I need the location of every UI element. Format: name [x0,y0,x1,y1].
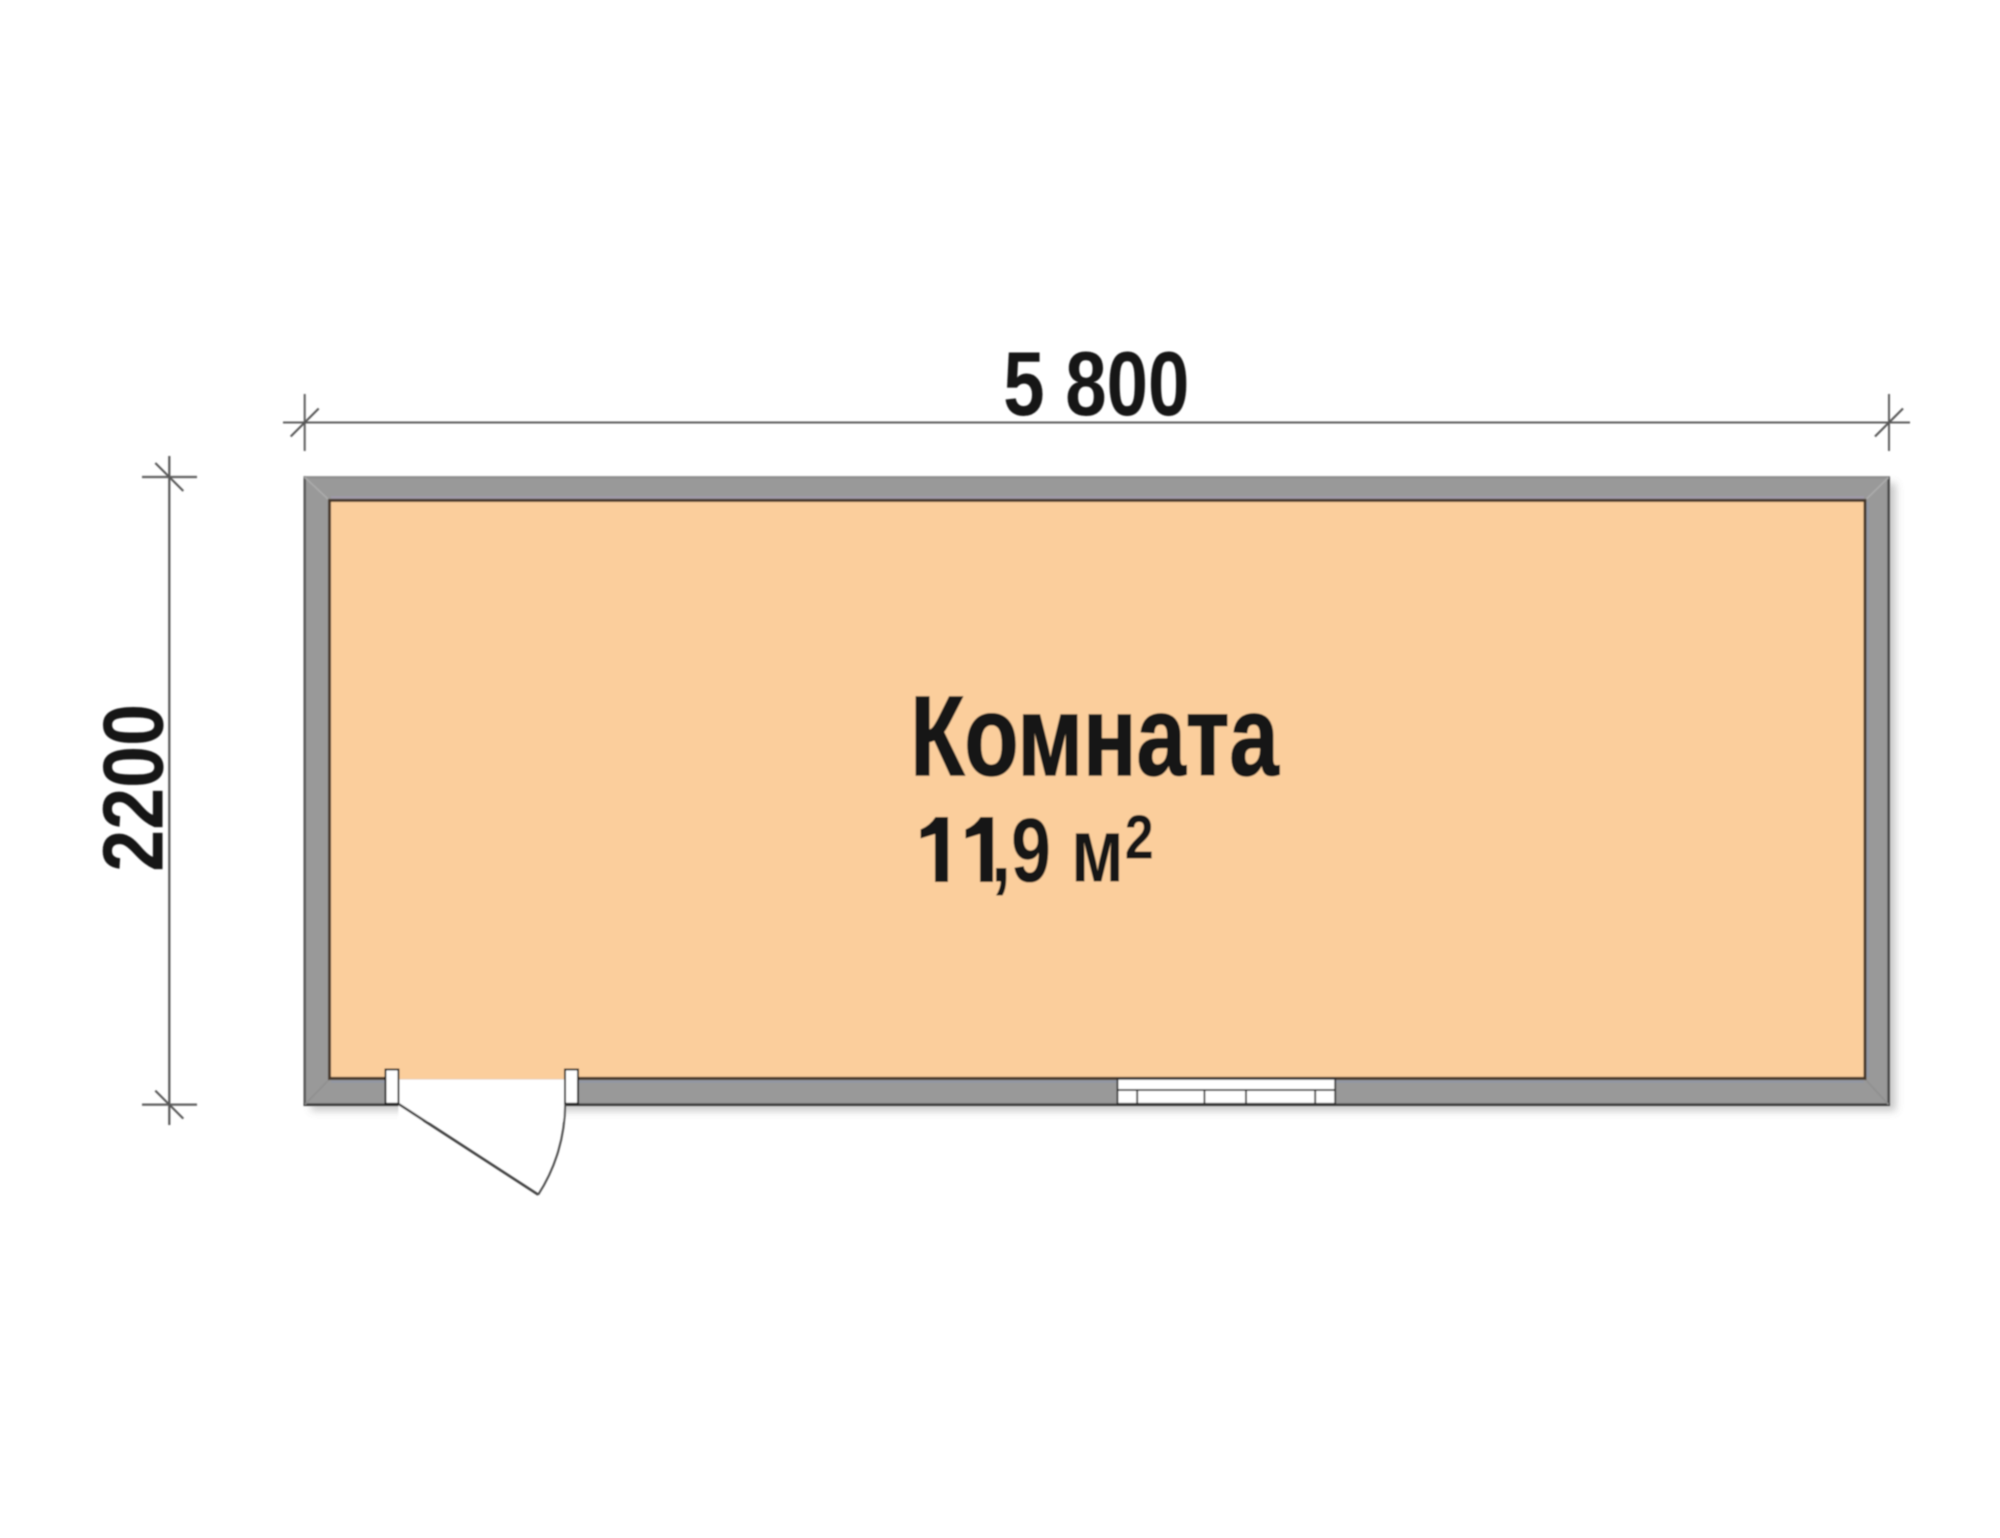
svg-text:Комната: Комната [910,673,1280,800]
svg-text:,9 м: ,9 м [991,801,1124,902]
svg-text:2: 2 [1125,803,1154,872]
svg-text:5 800: 5 800 [1003,333,1189,435]
svg-text:2200: 2200 [86,704,181,872]
